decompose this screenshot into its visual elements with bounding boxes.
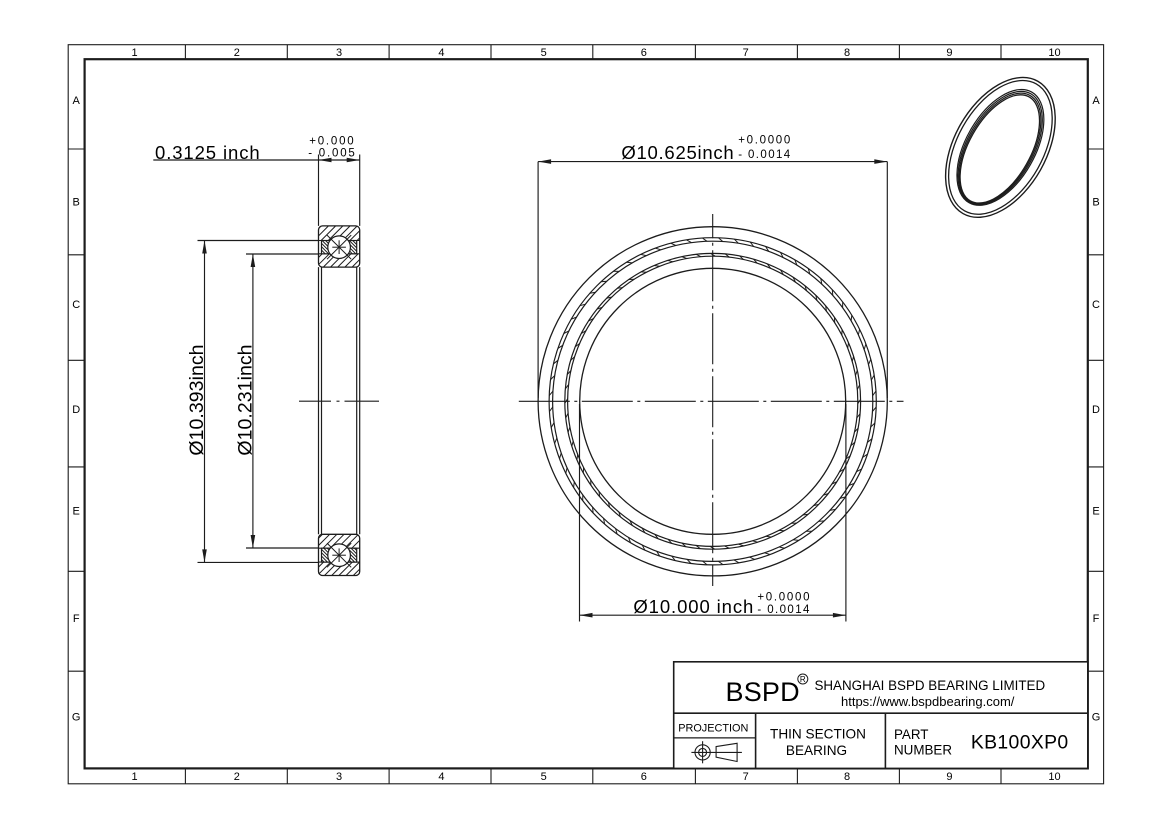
svg-text:https://www.bspdbearing.com/: https://www.bspdbearing.com/	[841, 694, 1015, 709]
svg-text:6: 6	[641, 771, 647, 783]
svg-text:R: R	[800, 675, 806, 684]
svg-text:BEARING: BEARING	[786, 743, 847, 758]
svg-text:F: F	[1093, 613, 1100, 625]
svg-text:G: G	[72, 712, 81, 724]
svg-text:3: 3	[336, 771, 342, 783]
svg-text:- 0.0014: - 0.0014	[738, 149, 791, 161]
svg-text:2: 2	[234, 47, 240, 59]
svg-text:5: 5	[541, 771, 547, 783]
svg-text:NUMBER: NUMBER	[894, 742, 952, 757]
svg-text:10: 10	[1048, 771, 1060, 783]
svg-text:4: 4	[438, 771, 444, 783]
svg-text:9: 9	[946, 47, 952, 59]
svg-text:6: 6	[641, 47, 647, 59]
svg-text:KB100XP0: KB100XP0	[971, 732, 1069, 754]
svg-text:7: 7	[743, 47, 749, 59]
svg-text:G: G	[1092, 712, 1101, 724]
svg-text:Ø10.393inch: Ø10.393inch	[186, 344, 208, 455]
svg-text:C: C	[1092, 299, 1100, 311]
svg-text:5: 5	[541, 47, 547, 59]
svg-text:THIN SECTION: THIN SECTION	[770, 727, 866, 742]
svg-text:E: E	[73, 506, 80, 518]
svg-text:9: 9	[946, 771, 952, 783]
svg-text:BSPD: BSPD	[726, 677, 800, 707]
svg-text:C: C	[72, 299, 80, 311]
svg-text:PROJECTION: PROJECTION	[678, 723, 748, 735]
svg-text:Ø10.231inch: Ø10.231inch	[235, 344, 257, 455]
svg-text:F: F	[73, 613, 80, 625]
svg-text:- 0.005: - 0.005	[308, 148, 356, 160]
svg-text:D: D	[1092, 404, 1100, 416]
svg-text:0.3125 inch: 0.3125 inch	[155, 142, 261, 163]
svg-text:D: D	[72, 404, 80, 416]
svg-text:A: A	[73, 95, 81, 107]
svg-text:SHANGHAI BSPD BEARING LIMITED: SHANGHAI BSPD BEARING LIMITED	[814, 678, 1045, 693]
svg-text:2: 2	[234, 771, 240, 783]
svg-text:- 0.0014: - 0.0014	[757, 604, 810, 616]
svg-text:Ø10.625inch: Ø10.625inch	[621, 142, 734, 163]
svg-text:B: B	[1092, 197, 1099, 209]
svg-text:+0.0000: +0.0000	[757, 591, 811, 603]
svg-text:7: 7	[743, 771, 749, 783]
svg-text:3: 3	[336, 47, 342, 59]
svg-text:1: 1	[131, 771, 137, 783]
svg-text:B: B	[73, 197, 80, 209]
svg-text:1: 1	[131, 47, 137, 59]
svg-text:8: 8	[844, 771, 850, 783]
svg-text:+0.0000: +0.0000	[738, 135, 792, 147]
svg-text:Ø10.000 inch: Ø10.000 inch	[633, 596, 754, 617]
svg-text:10: 10	[1048, 47, 1060, 59]
svg-text:E: E	[1092, 506, 1099, 518]
svg-text:8: 8	[844, 47, 850, 59]
svg-text:+0.000: +0.000	[309, 136, 355, 148]
svg-text:4: 4	[438, 47, 444, 59]
svg-text:PART: PART	[894, 727, 928, 742]
svg-text:A: A	[1092, 95, 1100, 107]
